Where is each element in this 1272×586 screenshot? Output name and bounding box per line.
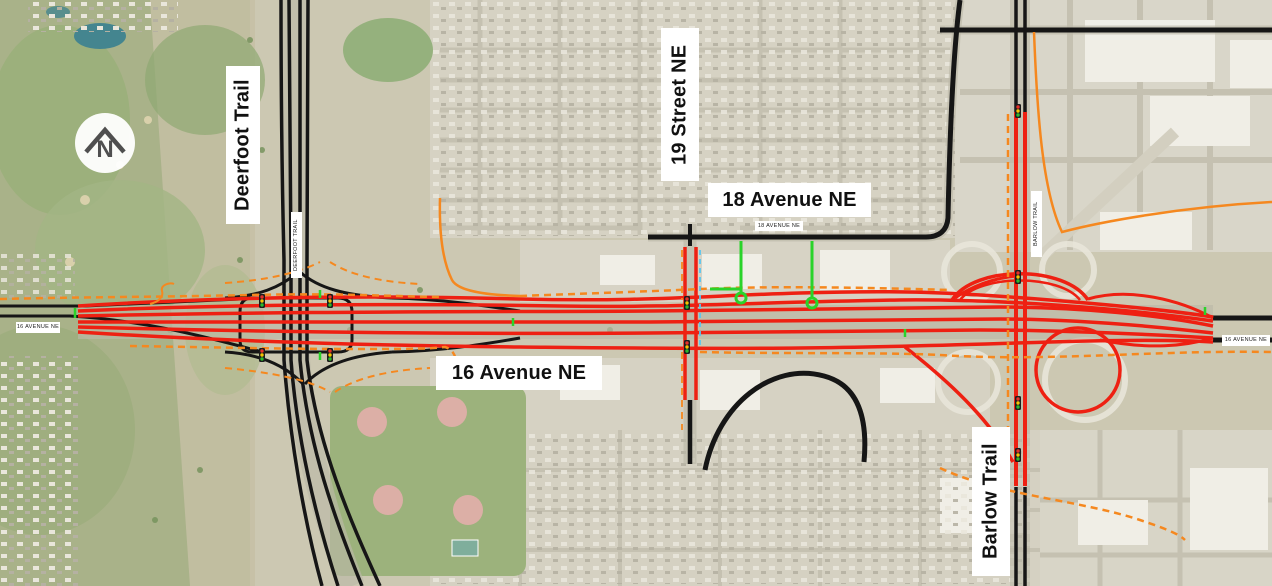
svg-text:N: N: [96, 136, 113, 163]
label-18-avenue-ne: 18 Avenue NE: [708, 183, 871, 217]
label-19-street-ne: 19 Street NE: [661, 28, 699, 181]
road-label-16-avenue-right: 16 AVENUE NE: [1222, 335, 1270, 346]
label-deerfoot-trail: Deerfoot Trail: [226, 66, 260, 224]
map-canvas: [0, 0, 1272, 586]
label-barlow-trail: Barlow Trail: [972, 427, 1010, 576]
label-16-avenue-ne: 16 Avenue NE: [436, 356, 602, 390]
interchange-plan-map: N Deerfoot Trail 19 Street NE 18 Avenue …: [0, 0, 1272, 586]
road-label-16-avenue-left: 16 AVENUE NE: [16, 322, 60, 333]
road-label-barlow-trail: BARLOW TRAIL: [1031, 191, 1042, 257]
road-label-18-avenue: 18 AVENUE NE: [755, 221, 803, 231]
road-label-deerfoot-trail: DEERFOOT TRAIL: [291, 212, 302, 278]
north-arrow-icon: N: [73, 111, 137, 175]
